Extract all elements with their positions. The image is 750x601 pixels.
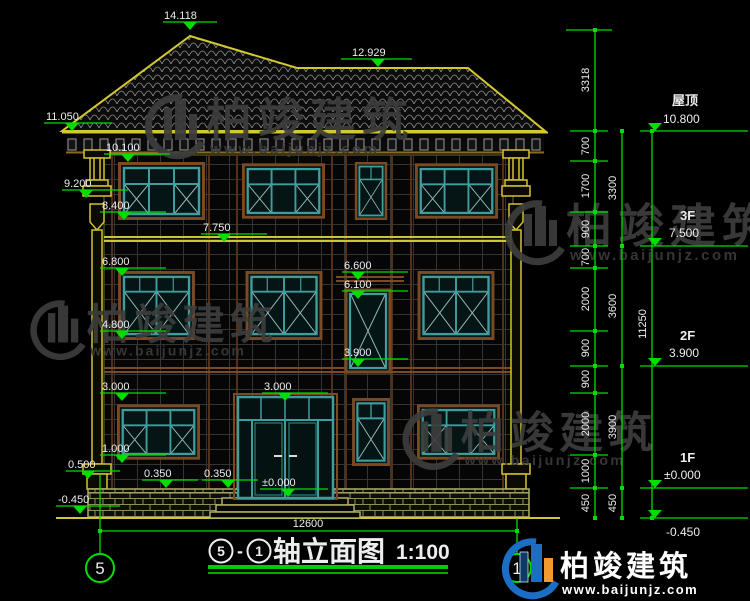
svg-text:6.800: 6.800 — [102, 256, 130, 268]
logo-building-bar — [531, 544, 542, 582]
window-1f-narrow — [354, 399, 389, 464]
level-label: 14.118 — [163, 10, 217, 30]
svg-text:3900: 3900 — [607, 415, 619, 439]
svg-text:1700: 1700 — [580, 174, 592, 198]
logo-url-text: www.baijunjz.com — [561, 582, 698, 597]
svg-text:4.800: 4.800 — [102, 319, 130, 331]
title-underline-thin — [208, 572, 448, 574]
svg-text:7.500: 7.500 — [669, 226, 699, 240]
level-markers-right: 屋顶10.800 3F7.500 2F3.900 1F±0.000 -0.450 — [640, 93, 748, 539]
entrance-steps — [210, 498, 360, 518]
watermark-right: 柏竣建筑 www.baijunjz.com — [508, 200, 750, 264]
window-3f-center — [243, 165, 323, 217]
logo-building-bar — [520, 552, 528, 582]
svg-text:9.200: 9.200 — [64, 178, 92, 190]
title-axis-from: 5 — [217, 543, 225, 559]
window-1f-left — [118, 406, 198, 458]
svg-text:3.900: 3.900 — [669, 346, 699, 360]
axis-bubble-left: 5 — [86, 554, 114, 582]
svg-text:6.100: 6.100 — [344, 279, 372, 291]
logo-building-bar — [544, 558, 553, 582]
svg-text:700: 700 — [580, 137, 592, 155]
svg-text:屋顶: 屋顶 — [672, 93, 698, 108]
svg-text:10.100: 10.100 — [106, 142, 140, 154]
svg-text:11.050: 11.050 — [46, 111, 79, 123]
svg-text:700: 700 — [580, 248, 592, 266]
svg-text:-0.450: -0.450 — [666, 525, 700, 539]
svg-text:3600: 3600 — [607, 294, 619, 318]
svg-text:14.118: 14.118 — [164, 10, 197, 22]
svg-text:450: 450 — [607, 494, 619, 512]
svg-text:3F: 3F — [680, 208, 695, 223]
level-2f: 2F3.900 — [640, 328, 748, 366]
svg-text:12.929: 12.929 — [352, 47, 386, 59]
watermark-brand: 柏竣建筑 — [206, 94, 414, 146]
svg-text:11250: 11250 — [637, 309, 649, 339]
cad-elevation-screenshot: 柏竣建筑 www.baijunjz.com 柏竣建筑 www.baijunjz.… — [0, 0, 750, 601]
svg-text:0.500: 0.500 — [68, 459, 96, 471]
svg-text:±0.000: ±0.000 — [664, 468, 701, 482]
svg-text:5: 5 — [95, 559, 104, 578]
watermark-url: www.baijunjz.com — [89, 343, 246, 358]
svg-text:2F: 2F — [680, 328, 695, 343]
svg-text:3.900: 3.900 — [344, 347, 372, 359]
svg-text:3318: 3318 — [580, 68, 592, 92]
brand-logo: 柏竣建筑 www.baijunjz.com — [505, 542, 698, 597]
title-underline-thick — [208, 565, 448, 569]
chain-outer-values: 11250 — [637, 309, 649, 339]
svg-text:12600: 12600 — [293, 518, 324, 530]
svg-text:3.000: 3.000 — [264, 381, 292, 393]
svg-text:±0.000: ±0.000 — [262, 477, 296, 489]
window-3f-right — [416, 165, 496, 217]
svg-text:6.600: 6.600 — [344, 260, 372, 272]
title-scale: 1:100 — [396, 541, 450, 564]
elevation-drawing: 柏竣建筑 www.baijunjz.com 柏竣建筑 www.baijunjz.… — [0, 0, 750, 601]
svg-text:7.750: 7.750 — [203, 222, 231, 234]
svg-text:0.350: 0.350 — [144, 468, 172, 480]
svg-text:2000: 2000 — [580, 412, 592, 436]
window-3f-narrow — [356, 163, 386, 219]
svg-text:0.350: 0.350 — [204, 468, 232, 480]
watermark-brand: 柏竣建筑 — [461, 409, 659, 458]
svg-text:10.800: 10.800 — [663, 112, 700, 126]
logo-brand-text: 柏竣建筑 — [560, 549, 692, 583]
watermark-left: 柏竣建筑 www.baijunjz.com — [34, 301, 278, 359]
title-axis-to: 1 — [255, 543, 263, 559]
svg-text:1000: 1000 — [580, 459, 592, 483]
svg-text:3.000: 3.000 — [102, 381, 130, 393]
window-3f-left — [120, 164, 204, 219]
title-name: 轴立面图 — [273, 535, 385, 567]
window-2f-right — [419, 272, 493, 338]
svg-text:450: 450 — [580, 494, 592, 512]
drawing-title: 5 - 1 轴立面图 1:100 — [208, 535, 450, 574]
svg-text:900: 900 — [580, 220, 592, 238]
level-ground: -0.450 — [640, 510, 748, 539]
svg-text:2000: 2000 — [580, 287, 592, 311]
level-roof: 屋顶10.800 — [640, 93, 748, 131]
svg-text:1.000: 1.000 — [102, 443, 130, 455]
svg-text:3300: 3300 — [607, 176, 619, 200]
svg-text:-0.450: -0.450 — [58, 494, 89, 506]
svg-text:1F: 1F — [680, 450, 695, 465]
title-dash: - — [237, 541, 243, 561]
level-label: 12.929 — [341, 47, 412, 67]
svg-text:900: 900 — [580, 339, 592, 357]
watermark-url: www.baijunjz.com — [209, 141, 379, 158]
svg-text:8.400: 8.400 — [102, 200, 130, 212]
svg-text:900: 900 — [580, 370, 592, 388]
